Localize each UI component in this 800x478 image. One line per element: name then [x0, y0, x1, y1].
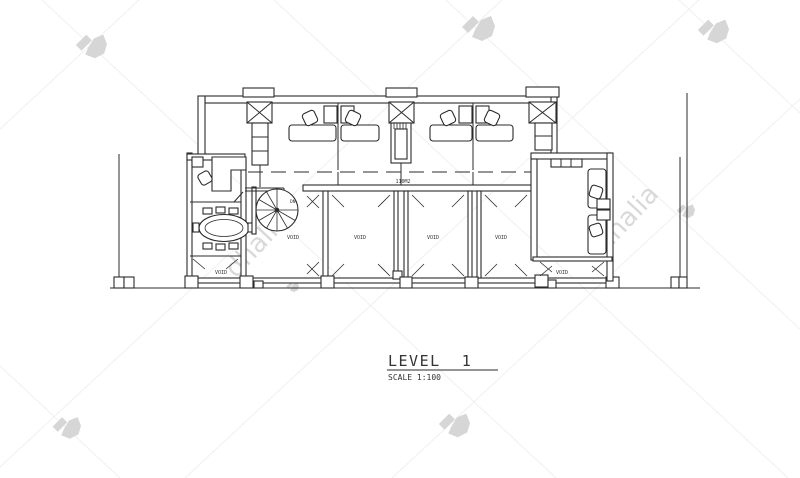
cabinet: [192, 157, 203, 167]
conference-chair: [216, 244, 225, 250]
workstation-desk: [430, 125, 472, 141]
floor-plan-drawing: dhalia dhalia: [0, 0, 800, 478]
conference-chair: [193, 223, 199, 232]
structural-column-x: [389, 102, 414, 123]
void-label-left: VOID: [215, 270, 227, 276]
area-label: 110M2: [395, 179, 410, 185]
watermark-gem-icon: [53, 417, 81, 439]
watermark-gem-icon: [286, 282, 299, 292]
void-label-right: VOID: [556, 270, 568, 276]
level-title: LEVEL 1: [388, 352, 472, 370]
spiral-staircase: DN: [245, 187, 298, 234]
cabinet: [324, 106, 337, 123]
cabinet: [597, 199, 610, 209]
boundary-column: [114, 277, 124, 288]
boundary-column: [124, 277, 134, 288]
boundary-column: [671, 277, 679, 288]
office-chair: [439, 109, 456, 126]
workstation-desk: [289, 125, 336, 141]
void-label-stair: VOID: [287, 235, 299, 241]
cabinet: [459, 106, 472, 123]
office-chair: [301, 109, 318, 126]
counter: [551, 159, 582, 167]
service-shaft: [535, 123, 552, 150]
structural-column-x: [529, 102, 556, 123]
void-label-bay5: VOID: [495, 235, 507, 241]
elevator-shaft: [391, 123, 411, 186]
conference-chair: [203, 208, 212, 214]
service-shaft: [252, 123, 268, 187]
conference-chair: [203, 243, 212, 249]
watermark-gem-icon: [698, 20, 729, 44]
void-label-bay3: VOID: [354, 235, 366, 241]
conference-table: [199, 215, 249, 242]
scale-label: SCALE 1:100: [388, 373, 441, 382]
office-chair: [197, 170, 213, 186]
workstation-desk: [476, 125, 513, 141]
upper-office-band: [198, 87, 559, 187]
cabinet: [597, 210, 610, 220]
scanned-floor-plan-page: dhalia dhalia: [0, 0, 800, 478]
workstation-desk: [341, 125, 379, 141]
void-label-bay4: VOID: [427, 235, 439, 241]
conference-chair: [216, 207, 225, 213]
conference-chair: [229, 208, 238, 214]
conference-chair: [229, 243, 238, 249]
watermark-gem-icon: [677, 204, 695, 218]
structural-column-x: [247, 102, 272, 123]
title-block: LEVEL 1 SCALE 1:100: [387, 352, 498, 382]
right-wing: VOID: [531, 153, 613, 281]
boundary-column: [679, 277, 687, 288]
stair-dn-label: DN: [290, 199, 296, 205]
watermark-gem-icon: [439, 414, 470, 438]
